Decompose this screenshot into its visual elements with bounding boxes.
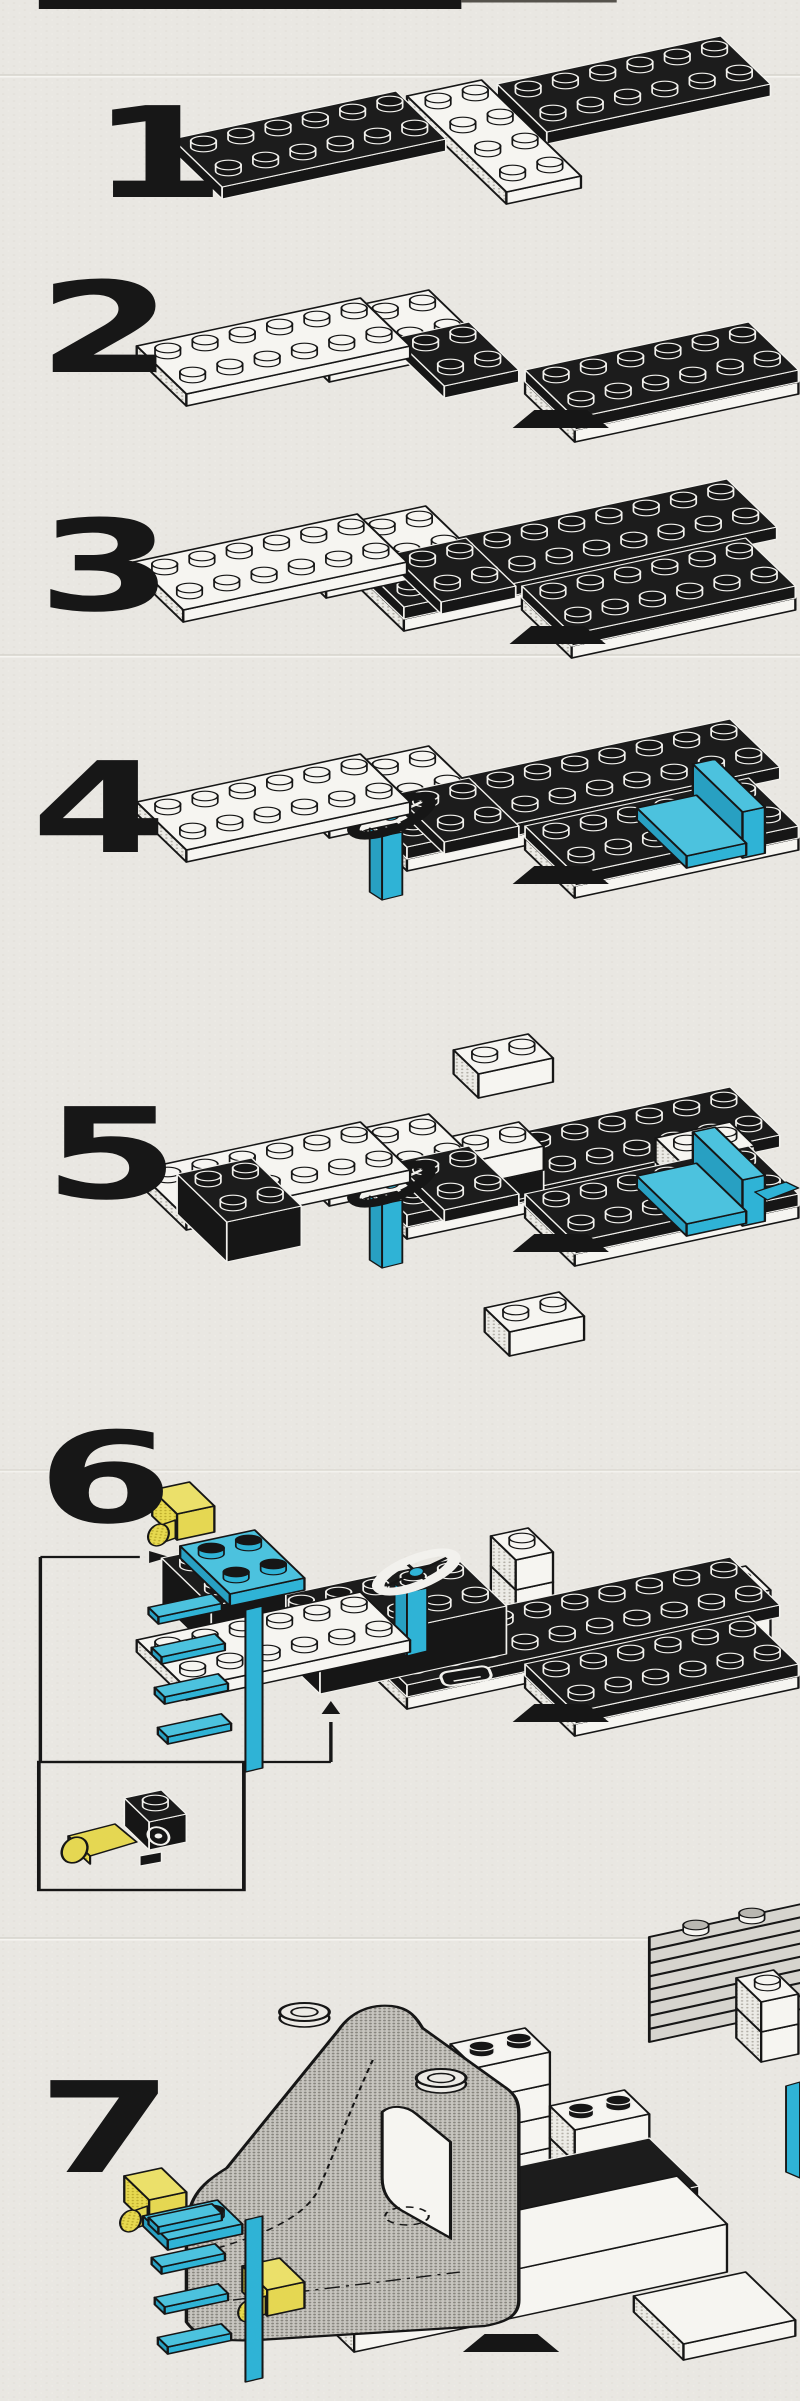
step-6-number: 6 [37, 1405, 173, 1552]
instruction-sheet: 1 2 3 4 5 6 7 [0, 0, 800, 2401]
step-2-number: 2 [37, 255, 173, 402]
header-bar-tail [461, 0, 616, 3]
header-bar [39, 0, 462, 9]
step-1-number: 1 [90, 80, 226, 227]
step-5-number: 5 [43, 1081, 179, 1228]
step-4-number: 4 [31, 735, 167, 882]
step-3-number: 3 [37, 493, 173, 640]
step-7-number: 7 [37, 2055, 173, 2202]
